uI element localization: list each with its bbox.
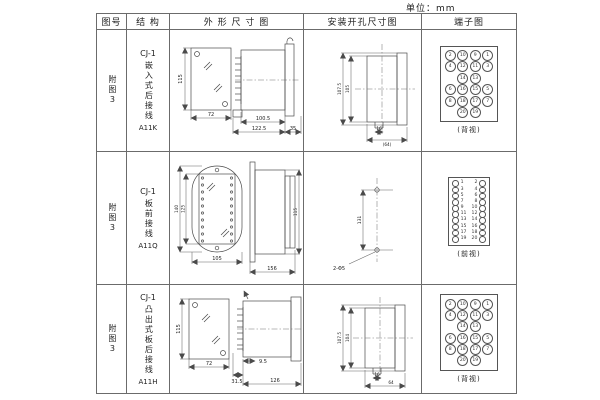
hole-spec-label: 2-Φ5	[333, 266, 345, 272]
terminal-pin-19	[452, 236, 459, 243]
row3-outline-cell: 115 72 9.5 31.5 126	[170, 285, 304, 393]
dim-hole-spacing: 131	[357, 216, 363, 225]
dim-len1: 100.5	[255, 116, 269, 122]
header-fig-no: 图号	[97, 14, 127, 30]
dim-body-height: 125	[180, 205, 185, 213]
terminal-pin-12: 12	[457, 61, 468, 72]
terminal-pin-8: 8	[445, 96, 456, 107]
terminal-pin-6: 6	[445, 333, 456, 344]
terminal-pin-13: 13	[470, 321, 481, 332]
row3-install-cell: 107.5 104 16 64	[304, 285, 422, 393]
row1-code: A11K	[139, 124, 157, 132]
row1-model: CJ-1	[140, 49, 156, 58]
terminal-pin-label: 16	[472, 225, 478, 230]
terminal-pin-3: 3	[482, 61, 493, 72]
screw-mark-icon	[207, 183, 215, 191]
terminal-pin-11: 11	[470, 61, 481, 72]
terminal-pin-15: 15	[470, 84, 481, 95]
dim-front-width: 72	[207, 112, 213, 118]
screw-mark-icon	[202, 314, 210, 322]
terminal-pin-2: 2	[445, 299, 456, 310]
terminal-pin-4: 4	[445, 61, 456, 72]
header-terminal: 端子图	[422, 14, 516, 30]
install-drawing-a11h: 107.5 104 16 64	[305, 287, 421, 391]
terminal-pin-7: 7	[482, 96, 493, 107]
dim-side-length: 156	[267, 266, 277, 272]
terminal-pin-10: 10	[457, 50, 468, 61]
terminal-view-label: (前视)	[457, 249, 480, 259]
terminal-pin-20	[479, 236, 486, 243]
dim-cutout-outer: 107.5	[337, 82, 342, 94]
row2-structure-text: 板前接线	[144, 199, 153, 239]
terminal-pin-label: 7	[461, 200, 464, 205]
terminal-view-label: (背视)	[457, 374, 480, 384]
row2-structure: CJ-1 板前接线 A11Q	[127, 152, 170, 285]
row3-structure-text: 凸出式板后接线	[144, 305, 153, 375]
terminal-pin-label: 13	[461, 218, 467, 223]
terminal-pin-6: 6	[445, 84, 456, 95]
dim-cutout-inner: 104	[345, 334, 350, 342]
screw-mark-icon	[214, 84, 222, 92]
row1-install-cell: 107.5 105 16 (64)	[304, 30, 422, 152]
terminal-pin-16: 16	[457, 84, 468, 95]
terminal-diagram-a11h: 2109141211314136161558181772019	[440, 294, 499, 371]
terminal-pin-label: 10	[472, 206, 478, 211]
row1-outline-cell: 115 72 100.5 122.5 35	[170, 30, 304, 152]
terminal-pin-label: 18	[472, 231, 478, 236]
row3-code: A11H	[139, 378, 158, 386]
terminal-pin-5: 5	[482, 84, 493, 95]
screw-mark-icon	[212, 336, 220, 344]
hook-icon	[244, 291, 248, 299]
dimension-table: 图号 结 构 外 形 尺 寸 图 安装开孔尺寸图 端子图 附图3 CJ-1 嵌入…	[96, 13, 517, 394]
header-structure: 结 构	[127, 14, 170, 30]
row1-structure-text: 嵌入式后接线	[144, 61, 153, 121]
dim-side-height: 115	[293, 208, 298, 216]
terminal-pin-14: 14	[457, 321, 468, 332]
terminal-pin-label: 6	[474, 194, 477, 199]
dim-front-height: 115	[176, 324, 182, 334]
dim-cutout-outer: 107.5	[337, 332, 342, 344]
dim-notch: 16	[376, 126, 382, 131]
terminal-pin-17: 17	[470, 344, 481, 355]
terminal-pin-18: 18	[457, 96, 468, 107]
terminal-pin-1: 1	[482, 50, 493, 61]
datasheet-page: 单位：mm 图号 结 构 外 形 尺 寸 图 安装开孔尺寸图 端子图 附图3 C…	[0, 0, 600, 400]
terminal-pin-9: 9	[470, 50, 481, 61]
row2-terminal-cell: 1234567891011121314151617181920 (前视)	[422, 152, 516, 285]
terminal-pin-5: 5	[482, 333, 493, 344]
terminal-pin-20: 20	[457, 355, 468, 366]
screw-mark-icon	[204, 62, 212, 70]
terminal-pin-3: 3	[482, 310, 493, 321]
dim-len2: 122.5	[251, 126, 265, 132]
row2-fig-label: 附图3	[107, 203, 116, 234]
dim-body-length: 126	[270, 378, 280, 384]
dim-tab-width: 64	[388, 380, 394, 385]
row3-fig-label: 附图3	[107, 324, 116, 355]
terminal-pin-4: 4	[445, 310, 456, 321]
terminal-pin-19: 19	[470, 355, 481, 366]
row1-terminal-cell: 2109141211314136161558181772019 (背视)	[422, 30, 516, 152]
install-drawing-a11k: 107.5 105 16 (64)	[305, 32, 421, 150]
row1-fig-no: 附图3	[97, 30, 127, 152]
terminal-pin-14: 14	[457, 73, 468, 84]
terminal-pin-13: 13	[470, 73, 481, 84]
dim-gap: 9.5	[259, 359, 267, 365]
row2-install-cell: 131 2-Φ5	[304, 152, 422, 285]
row3-structure: CJ-1 凸出式板后接线 A11H	[127, 285, 170, 393]
row1-structure: CJ-1 嵌入式后接线 A11K	[127, 30, 170, 152]
row1-fig-label: 附图3	[107, 75, 116, 106]
dim-front-width: 72	[205, 361, 211, 367]
outline-drawing-a11q: 140 125 105 156 115	[172, 154, 302, 282]
hook-icon	[286, 37, 292, 43]
row3-terminal-cell: 2109141211314136161558181772019 (背视)	[422, 285, 516, 393]
terminal-pin-18: 18	[457, 344, 468, 355]
dim-tab-width: (64)	[382, 142, 391, 147]
dim-notch: 16	[374, 372, 380, 377]
terminal-pin-1: 1	[482, 299, 493, 310]
terminal-pin-16: 16	[457, 333, 468, 344]
terminal-pin-19: 19	[470, 107, 481, 118]
terminal-diagram-a11k: 2109141211314136161558181772019	[440, 46, 499, 123]
terminal-pin-label: 1	[461, 181, 464, 186]
terminal-pin-label: 19	[461, 237, 467, 242]
dim-flange-height: 140	[174, 205, 179, 213]
terminal-pin-label: 20	[472, 237, 478, 242]
terminal-pin-label: 5	[461, 194, 464, 199]
terminal-diagram-a11q: 1234567891011121314151617181920	[448, 177, 490, 247]
terminal-pin-label: 14	[472, 218, 478, 223]
dim-front-height: 115	[178, 74, 184, 84]
row2-model: CJ-1	[140, 187, 156, 196]
terminal-pin-17: 17	[470, 96, 481, 107]
terminal-pin-10: 10	[457, 299, 468, 310]
terminal-pin-12: 12	[457, 310, 468, 321]
terminal-pin-label: 17	[461, 231, 467, 236]
dim-cutout-inner: 105	[345, 84, 350, 92]
terminal-pin-2: 2	[445, 50, 456, 61]
row2-outline-cell: 140 125 105 156 115	[170, 152, 304, 285]
dim-front-width: 105	[212, 256, 222, 262]
row3-fig-no: 附图3	[97, 285, 127, 393]
header-install: 安装开孔尺寸图	[304, 14, 422, 30]
terminal-pin-label: 8	[474, 200, 477, 205]
install-drawing-a11q: 131 2-Φ5	[305, 154, 421, 282]
terminal-pin-label: 3	[461, 188, 464, 193]
outline-drawing-a11k: 115 72 100.5 122.5 35	[171, 32, 303, 150]
row2-code: A11Q	[138, 242, 157, 250]
header-outline: 外 形 尺 寸 图	[170, 14, 304, 30]
terminal-pin-15: 15	[470, 333, 481, 344]
row3-model: CJ-1	[140, 293, 156, 302]
terminal-pin-20: 20	[457, 107, 468, 118]
row2-fig-no: 附图3	[97, 152, 127, 285]
terminal-pin-label: 2	[474, 181, 477, 186]
outline-drawing-a11h: 115 72 9.5 31.5 126	[171, 287, 303, 391]
terminal-pin-label: 9	[461, 206, 464, 211]
dim-flange: 35	[289, 126, 295, 132]
terminal-pin-7: 7	[482, 344, 493, 355]
terminal-pin-11: 11	[470, 310, 481, 321]
terminal-pin-label: 4	[474, 188, 477, 193]
terminal-pin-8: 8	[445, 344, 456, 355]
terminal-view-label: (背视)	[457, 125, 480, 135]
screw-mark-icon	[221, 229, 229, 237]
terminal-pin-9: 9	[470, 299, 481, 310]
terminal-pin-label: 15	[461, 225, 467, 230]
dim-pin-depth: 31.5	[231, 379, 242, 385]
